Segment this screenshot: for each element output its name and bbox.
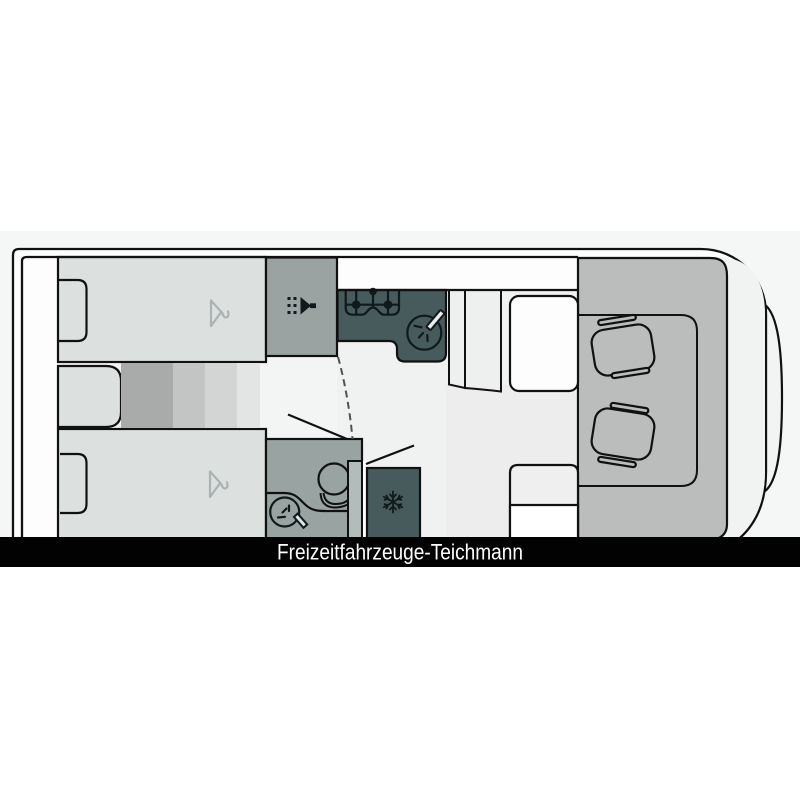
svg-text:Freizeitfahrzeuge-Teichmann: Freizeitfahrzeuge-Teichmann [277, 540, 523, 565]
